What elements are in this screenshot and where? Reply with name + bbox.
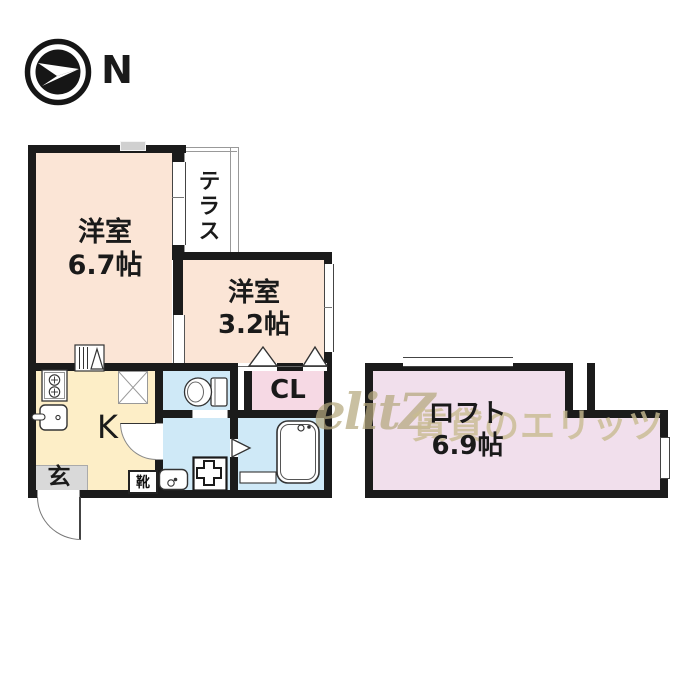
washbasin-icon	[158, 468, 190, 492]
wall	[174, 363, 238, 371]
window	[403, 357, 513, 367]
wall	[365, 363, 373, 498]
wall	[230, 457, 238, 498]
wall	[173, 260, 183, 315]
room-name: 洋室	[218, 278, 290, 310]
vent-icon	[120, 141, 146, 151]
label-western-3-2: 洋室 3.2帖	[190, 268, 318, 352]
wall	[365, 490, 668, 498]
shoe-box-label: 靴	[136, 472, 150, 492]
shoe-box: 靴	[128, 470, 158, 494]
wall	[172, 145, 184, 162]
room-name: 洋室	[68, 217, 143, 250]
stove-icon	[41, 369, 68, 402]
north-compass-icon	[22, 36, 94, 108]
room-door-opening	[173, 315, 185, 363]
terrace-inner-line	[230, 147, 231, 257]
north-label: N	[97, 47, 137, 93]
wall	[28, 145, 36, 498]
terrace-inner-line	[184, 151, 237, 152]
window-tick	[324, 307, 332, 308]
toilet-icon	[182, 374, 232, 410]
room-area: 6.9帖	[428, 431, 506, 463]
wall	[324, 352, 332, 498]
wall	[226, 410, 332, 418]
refrigerator-space-icon	[118, 371, 148, 404]
loft-ladder-icon	[73, 343, 107, 373]
kitchen-sink-icon	[31, 403, 69, 432]
room-area: 3.2帖	[218, 310, 290, 342]
wall	[230, 418, 238, 439]
window	[172, 162, 186, 245]
kitchen-door-opening	[155, 423, 163, 460]
label-kitchen: K	[85, 405, 130, 450]
room-loft-extension	[565, 418, 660, 490]
wall	[28, 145, 186, 153]
washing-machine-icon	[192, 456, 228, 492]
entrance-door-swing-icon	[37, 497, 81, 540]
label-entrance: 玄	[38, 463, 80, 491]
label-loft: ロフト 6.9帖	[390, 398, 545, 464]
floor-plan: N	[0, 0, 700, 700]
loft-notch	[573, 363, 587, 410]
wall	[565, 410, 668, 418]
window	[660, 437, 670, 479]
label-terrace: テラス	[190, 158, 222, 254]
wall	[244, 371, 252, 410]
label-closet: CL	[252, 372, 324, 409]
window-tick	[172, 197, 184, 198]
toilet-door-opening	[192, 410, 228, 418]
wall	[155, 410, 192, 418]
room-name: ロフト	[428, 399, 506, 431]
wall	[324, 252, 332, 264]
label-western-6-7: 洋室 6.7帖	[40, 200, 170, 300]
room-area: 6.7帖	[68, 250, 143, 283]
bathtub-icon	[238, 418, 324, 490]
